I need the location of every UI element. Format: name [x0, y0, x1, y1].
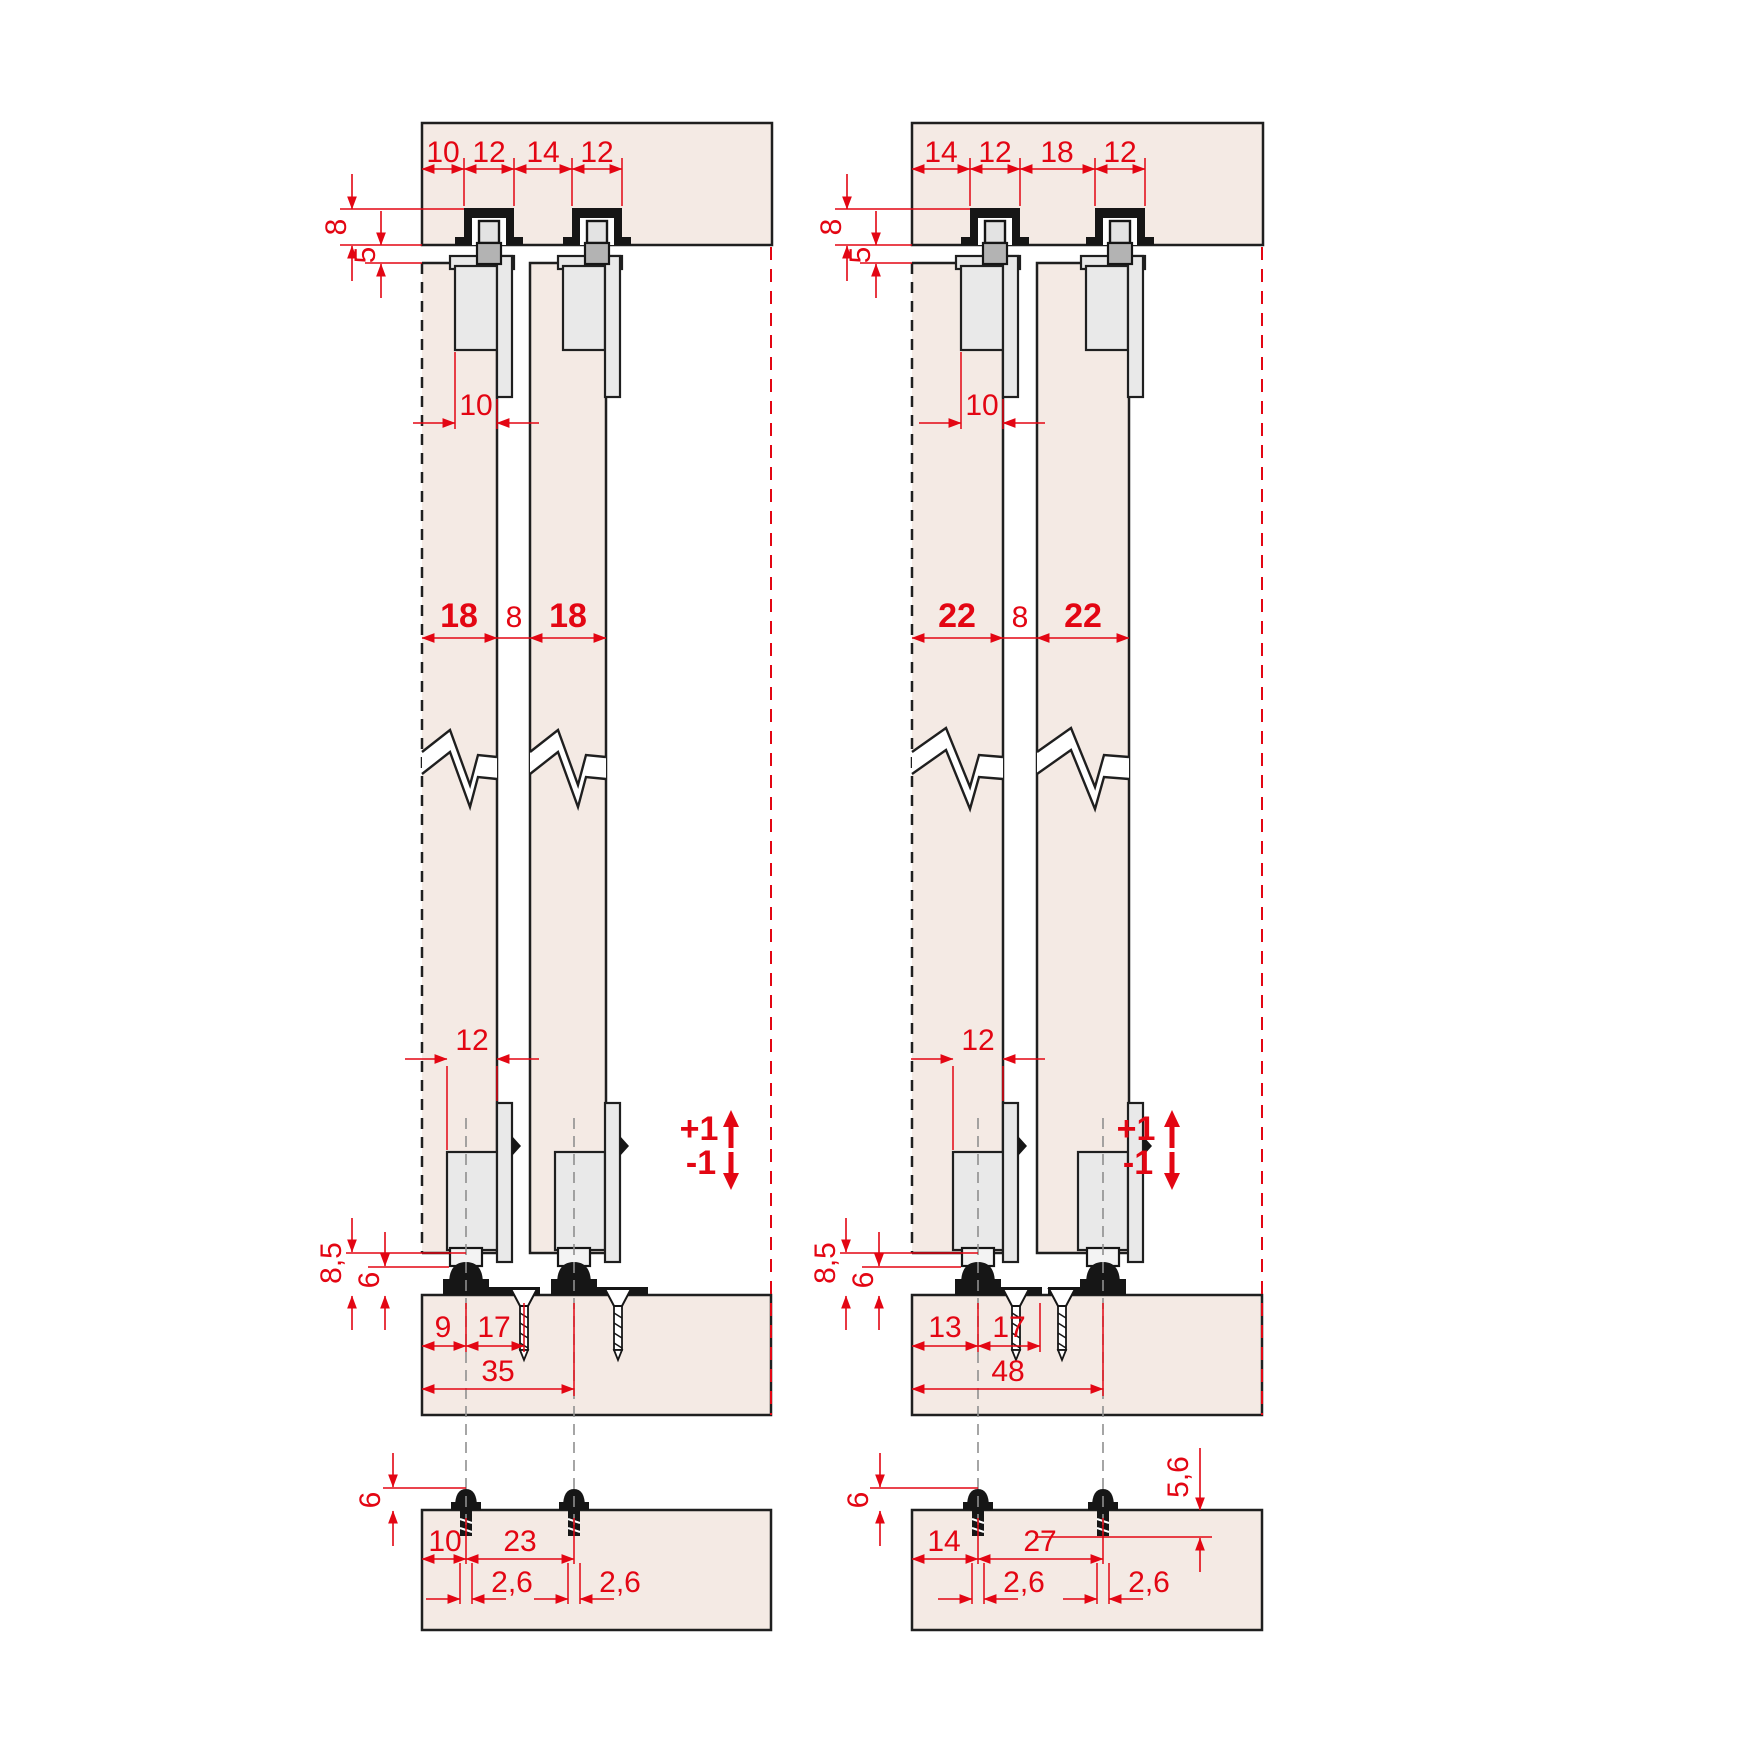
- adjust-up-arrow: [723, 1110, 739, 1148]
- dim-label: 13: [928, 1311, 961, 1344]
- right-detail-board: [912, 1510, 1262, 1630]
- dim-label: 10: [459, 389, 492, 422]
- dim-label: 14: [927, 1525, 960, 1558]
- dim-label: 2,6: [491, 1566, 533, 1599]
- dim-label-door-thickness: 22: [938, 597, 976, 635]
- left-diagram-18mm: 10 12 14 12 8 5 10 18 8 18: [315, 123, 772, 1630]
- dim-label: 5: [349, 247, 382, 264]
- dim-label: 2,6: [1128, 1566, 1170, 1599]
- right-bottom-board: [912, 1295, 1262, 1415]
- dim-label: 8: [815, 219, 848, 236]
- right-top-board: [912, 123, 1263, 245]
- dim-label-door-thickness: 22: [1064, 597, 1102, 635]
- dim-label: 8,5: [315, 1242, 348, 1284]
- dim-label: 10: [965, 389, 998, 422]
- dim-label: 10: [428, 1525, 461, 1558]
- left-detail-board: [422, 1510, 771, 1630]
- dim-label: 27: [1023, 1525, 1056, 1558]
- dim-label-door-thickness: 18: [549, 597, 587, 635]
- dim-label: 17: [477, 1311, 510, 1344]
- dim-label: 18: [1040, 136, 1073, 169]
- dim-label: 6: [354, 1492, 387, 1509]
- dim-label: 12: [472, 136, 505, 169]
- dim-label: 23: [503, 1525, 536, 1558]
- dim-label: 14: [924, 136, 957, 169]
- dim-label: 6: [353, 1272, 386, 1289]
- dim-label: 35: [481, 1355, 514, 1388]
- dim-label: 9: [435, 1311, 452, 1344]
- dim-label-door-thickness: 18: [440, 597, 478, 635]
- dim-label: 8: [320, 219, 353, 236]
- dim-label: 14: [526, 136, 559, 169]
- right-diagram-22mm: 14 12 18 12 8 5 10 22 8 22: [809, 123, 1263, 1630]
- adjustment-minus-label: -1: [686, 1144, 716, 1182]
- left-bottom-board: [422, 1295, 771, 1415]
- dim-label: 5,6: [1162, 1456, 1195, 1498]
- adjustment-plus-label: +1: [1117, 1110, 1156, 1148]
- dim-label: 48: [991, 1355, 1024, 1388]
- dim-label: 8: [1012, 601, 1029, 634]
- dim-label: 10: [426, 136, 459, 169]
- adjust-down-arrow: [723, 1152, 739, 1190]
- dim-label: 12: [580, 136, 613, 169]
- dim-label: 12: [1103, 136, 1136, 169]
- dim-label: 2,6: [1003, 1566, 1045, 1599]
- installation-drawing-page: 10 12 14 12 8 5 10 18 8 18: [0, 0, 1746, 1747]
- dim-label: 8,5: [809, 1242, 842, 1284]
- adjustment-plus-label: +1: [680, 1110, 719, 1148]
- dim-label: 12: [978, 136, 1011, 169]
- adjust-down-arrow: [1164, 1152, 1180, 1190]
- dim-label: 12: [961, 1024, 994, 1057]
- dim-label: 8: [506, 601, 523, 634]
- dim-label: 5: [844, 247, 877, 264]
- adjust-up-arrow: [1164, 1110, 1180, 1148]
- sliding-door-cross-section-diagram: 10 12 14 12 8 5 10 18 8 18: [0, 0, 1746, 1747]
- dim-label: 17: [992, 1311, 1025, 1344]
- dim-label: 12: [455, 1024, 488, 1057]
- dim-label: 6: [847, 1272, 880, 1289]
- adjustment-minus-label: -1: [1123, 1144, 1153, 1182]
- dim-label: 2,6: [599, 1566, 641, 1599]
- dim-label: 6: [842, 1492, 875, 1509]
